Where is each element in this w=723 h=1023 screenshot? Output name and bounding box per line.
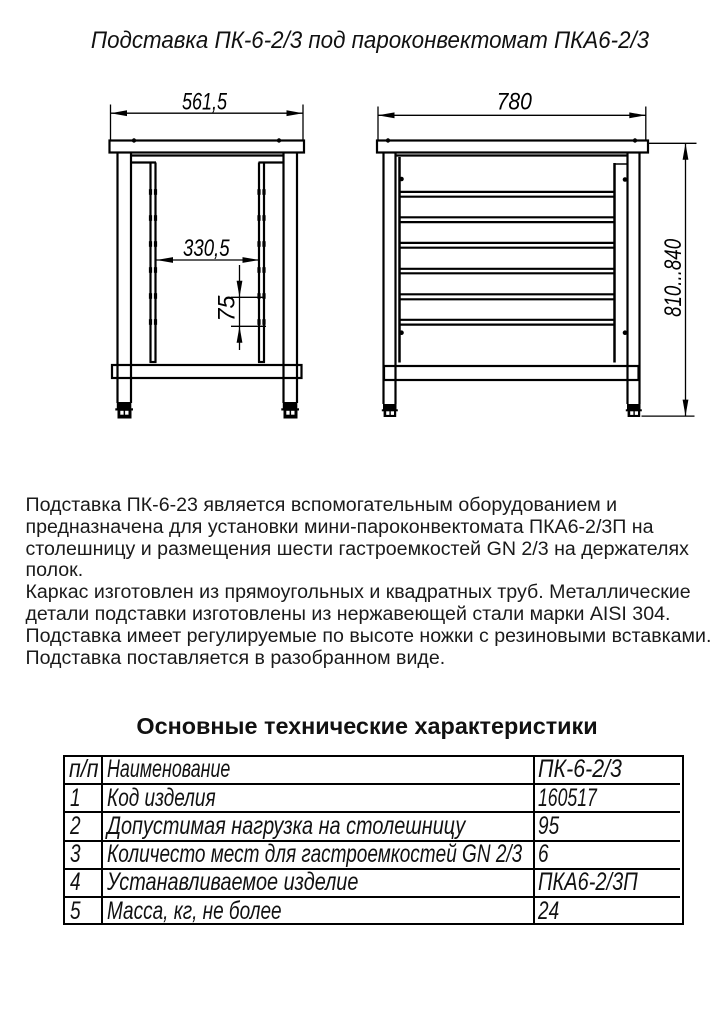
svg-text:810...840: 810...840	[660, 239, 687, 317]
svg-text:330,5: 330,5	[183, 235, 230, 262]
svg-text:75: 75	[214, 295, 240, 322]
svg-text:561,5: 561,5	[182, 89, 227, 115]
svg-text:780: 780	[497, 88, 533, 115]
